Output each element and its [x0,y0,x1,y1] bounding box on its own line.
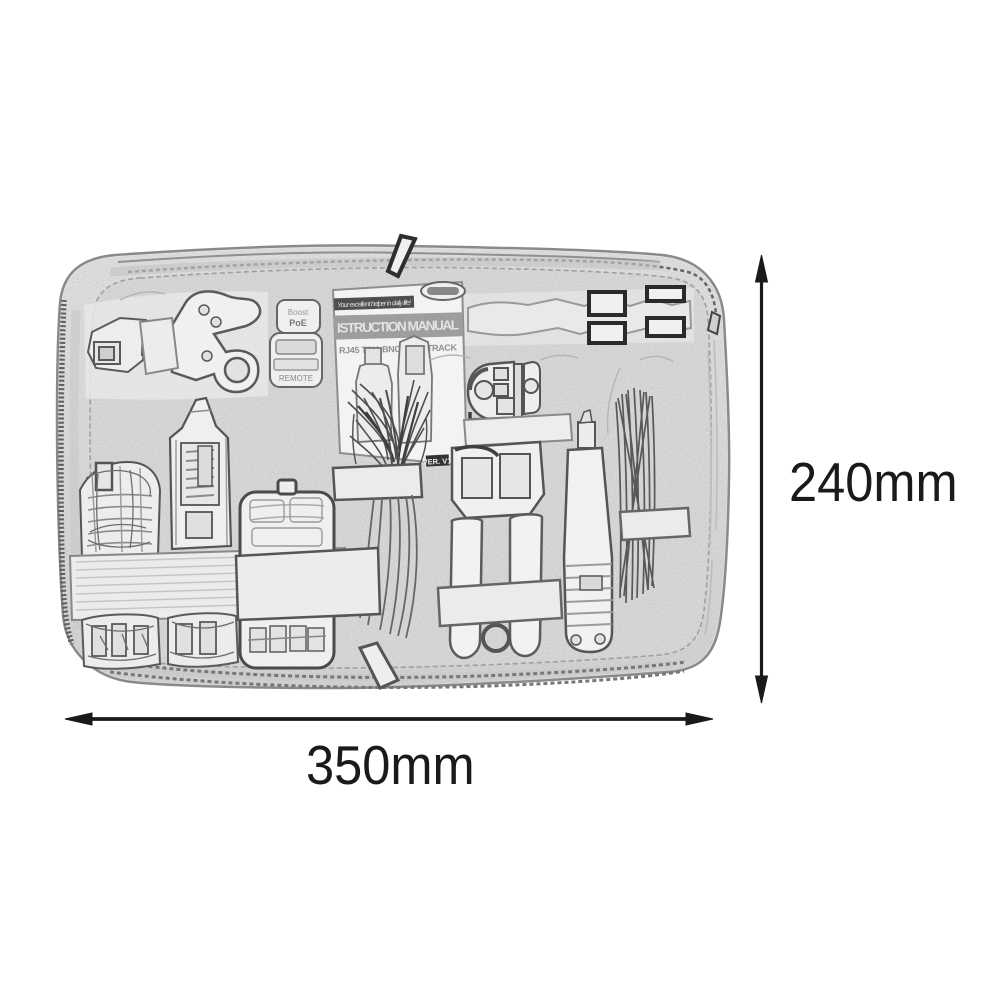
svg-text:VER. V1: VER. V1 [422,456,451,466]
svg-text:ISTRUCTION MANUAL: ISTRUCTION MANUAL [337,317,459,335]
svg-text:Boost: Boost [288,308,309,317]
svg-text:350mm: 350mm [306,735,475,796]
svg-text:PoE: PoE [289,318,307,328]
svg-text:REMOTE: REMOTE [279,374,313,383]
svg-text:240mm: 240mm [789,452,958,513]
